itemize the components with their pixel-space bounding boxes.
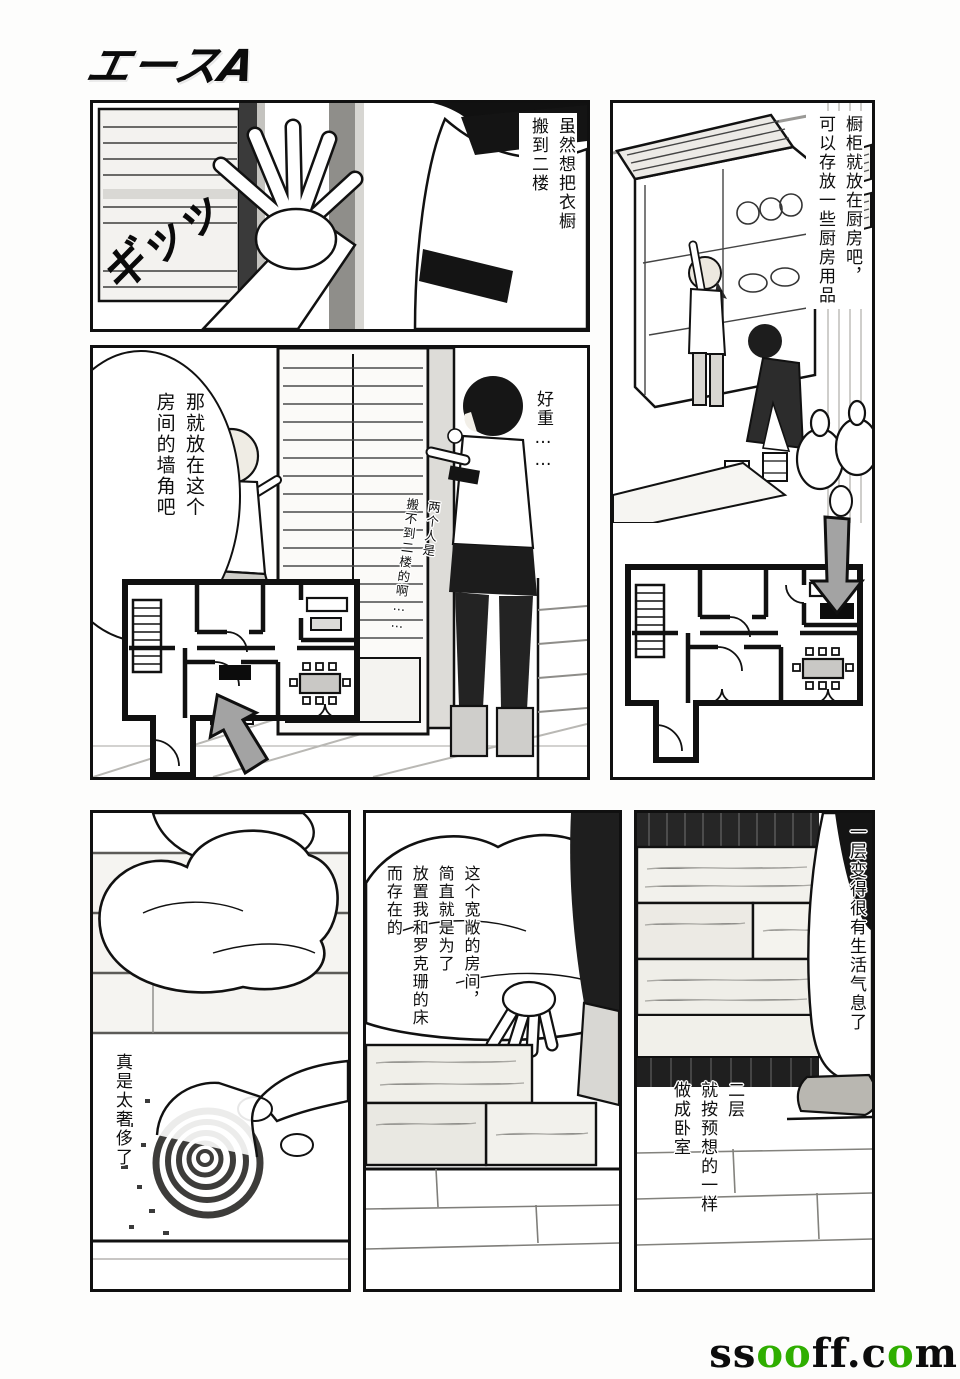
panel-push-wardrobe: 虽然想把衣橱 搬到二楼 ギッッ [90, 100, 590, 332]
narration-second-floor: 二层 就按预想的一样 做成卧室 [663, 1081, 744, 1214]
publisher-logo: エースA [81, 30, 262, 94]
panel-kitchen-cupboard: 橱柜就放在厨房吧， 可以存放一些厨房用品 [610, 100, 875, 780]
panel-bedroom-floors: 一层变得很有生活气息了 二层 就按预想的一样 做成卧室 [634, 810, 875, 1292]
floor-plan-kitchen [618, 515, 870, 767]
site-watermark: ssooff.com [709, 1330, 958, 1377]
narration-move-wardrobe: 虽然想把衣橱 搬到二楼 [519, 113, 577, 235]
speech-text-corner: 那就放在这个 房间的墙角吧 [146, 392, 205, 518]
rug-roll-illustration [93, 813, 348, 1289]
panel-rug-roll: 真是太奢侈了 [90, 810, 351, 1292]
narration-first-floor: 一层变得很有生活气息了 [839, 823, 866, 1032]
narration-cupboard-kitchen: 橱柜就放在厨房吧， 可以存放一些厨房用品 [806, 111, 864, 309]
speech-room-for-our-bed: 这个宽敞的房间， 简直就是为了 放置我和罗克珊的床 而存在的 [376, 865, 480, 1027]
speech-luxurious: 真是太奢侈了 [105, 1053, 132, 1167]
plan-wardrobe-marker [219, 665, 251, 680]
speech-heavy: 好重…… [526, 390, 553, 472]
manga-page: エースA [0, 0, 960, 1379]
panel-mattress: 这个宽敞的房间， 简直就是为了 放置我和罗克珊的床 而存在的 [363, 810, 622, 1292]
panel-wardrobe-corner: 那就放在这个 房间的墙角吧 好重…… 两个人是 搬不到二楼的啊…… [90, 345, 590, 780]
floor-plan-corner [115, 570, 367, 780]
bedroom-illustration [637, 813, 872, 1289]
